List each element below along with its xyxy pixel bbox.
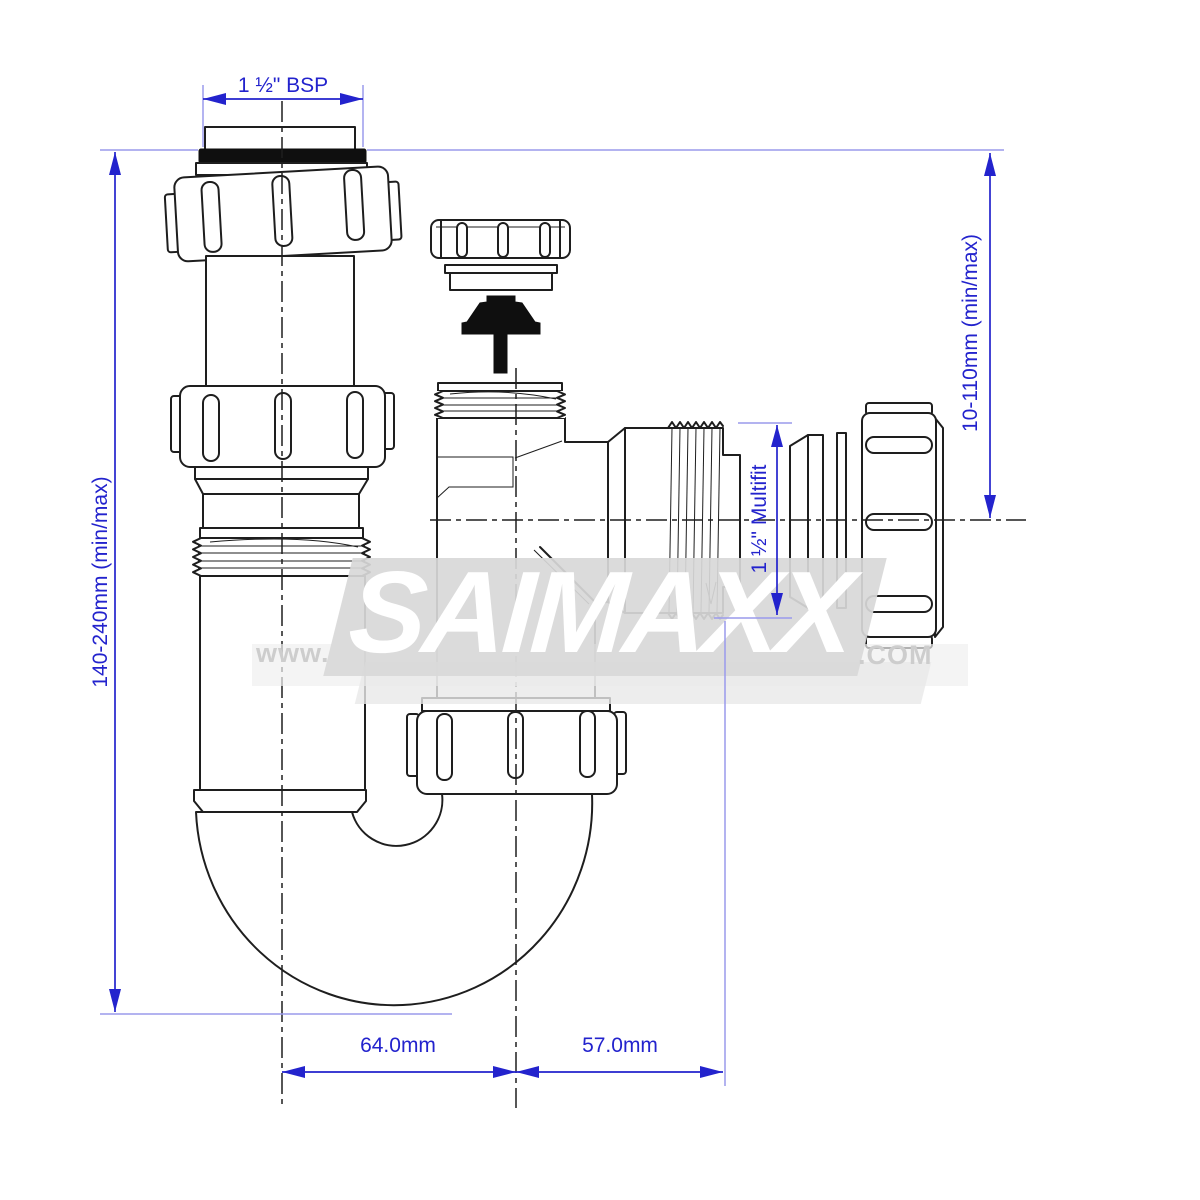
dimension-lines xyxy=(0,0,1200,1200)
dim-bottom-right xyxy=(516,1066,723,1078)
dim-bottom-left xyxy=(282,1066,516,1078)
dim-right-height xyxy=(984,153,996,518)
technical-drawing-page: www. SAIMAXX .COM xyxy=(0,0,1200,1200)
dim-left-height xyxy=(109,152,121,1012)
extension-lines xyxy=(100,85,1004,1086)
dim-top-width xyxy=(203,93,363,105)
dim-outlet-size xyxy=(771,425,783,615)
